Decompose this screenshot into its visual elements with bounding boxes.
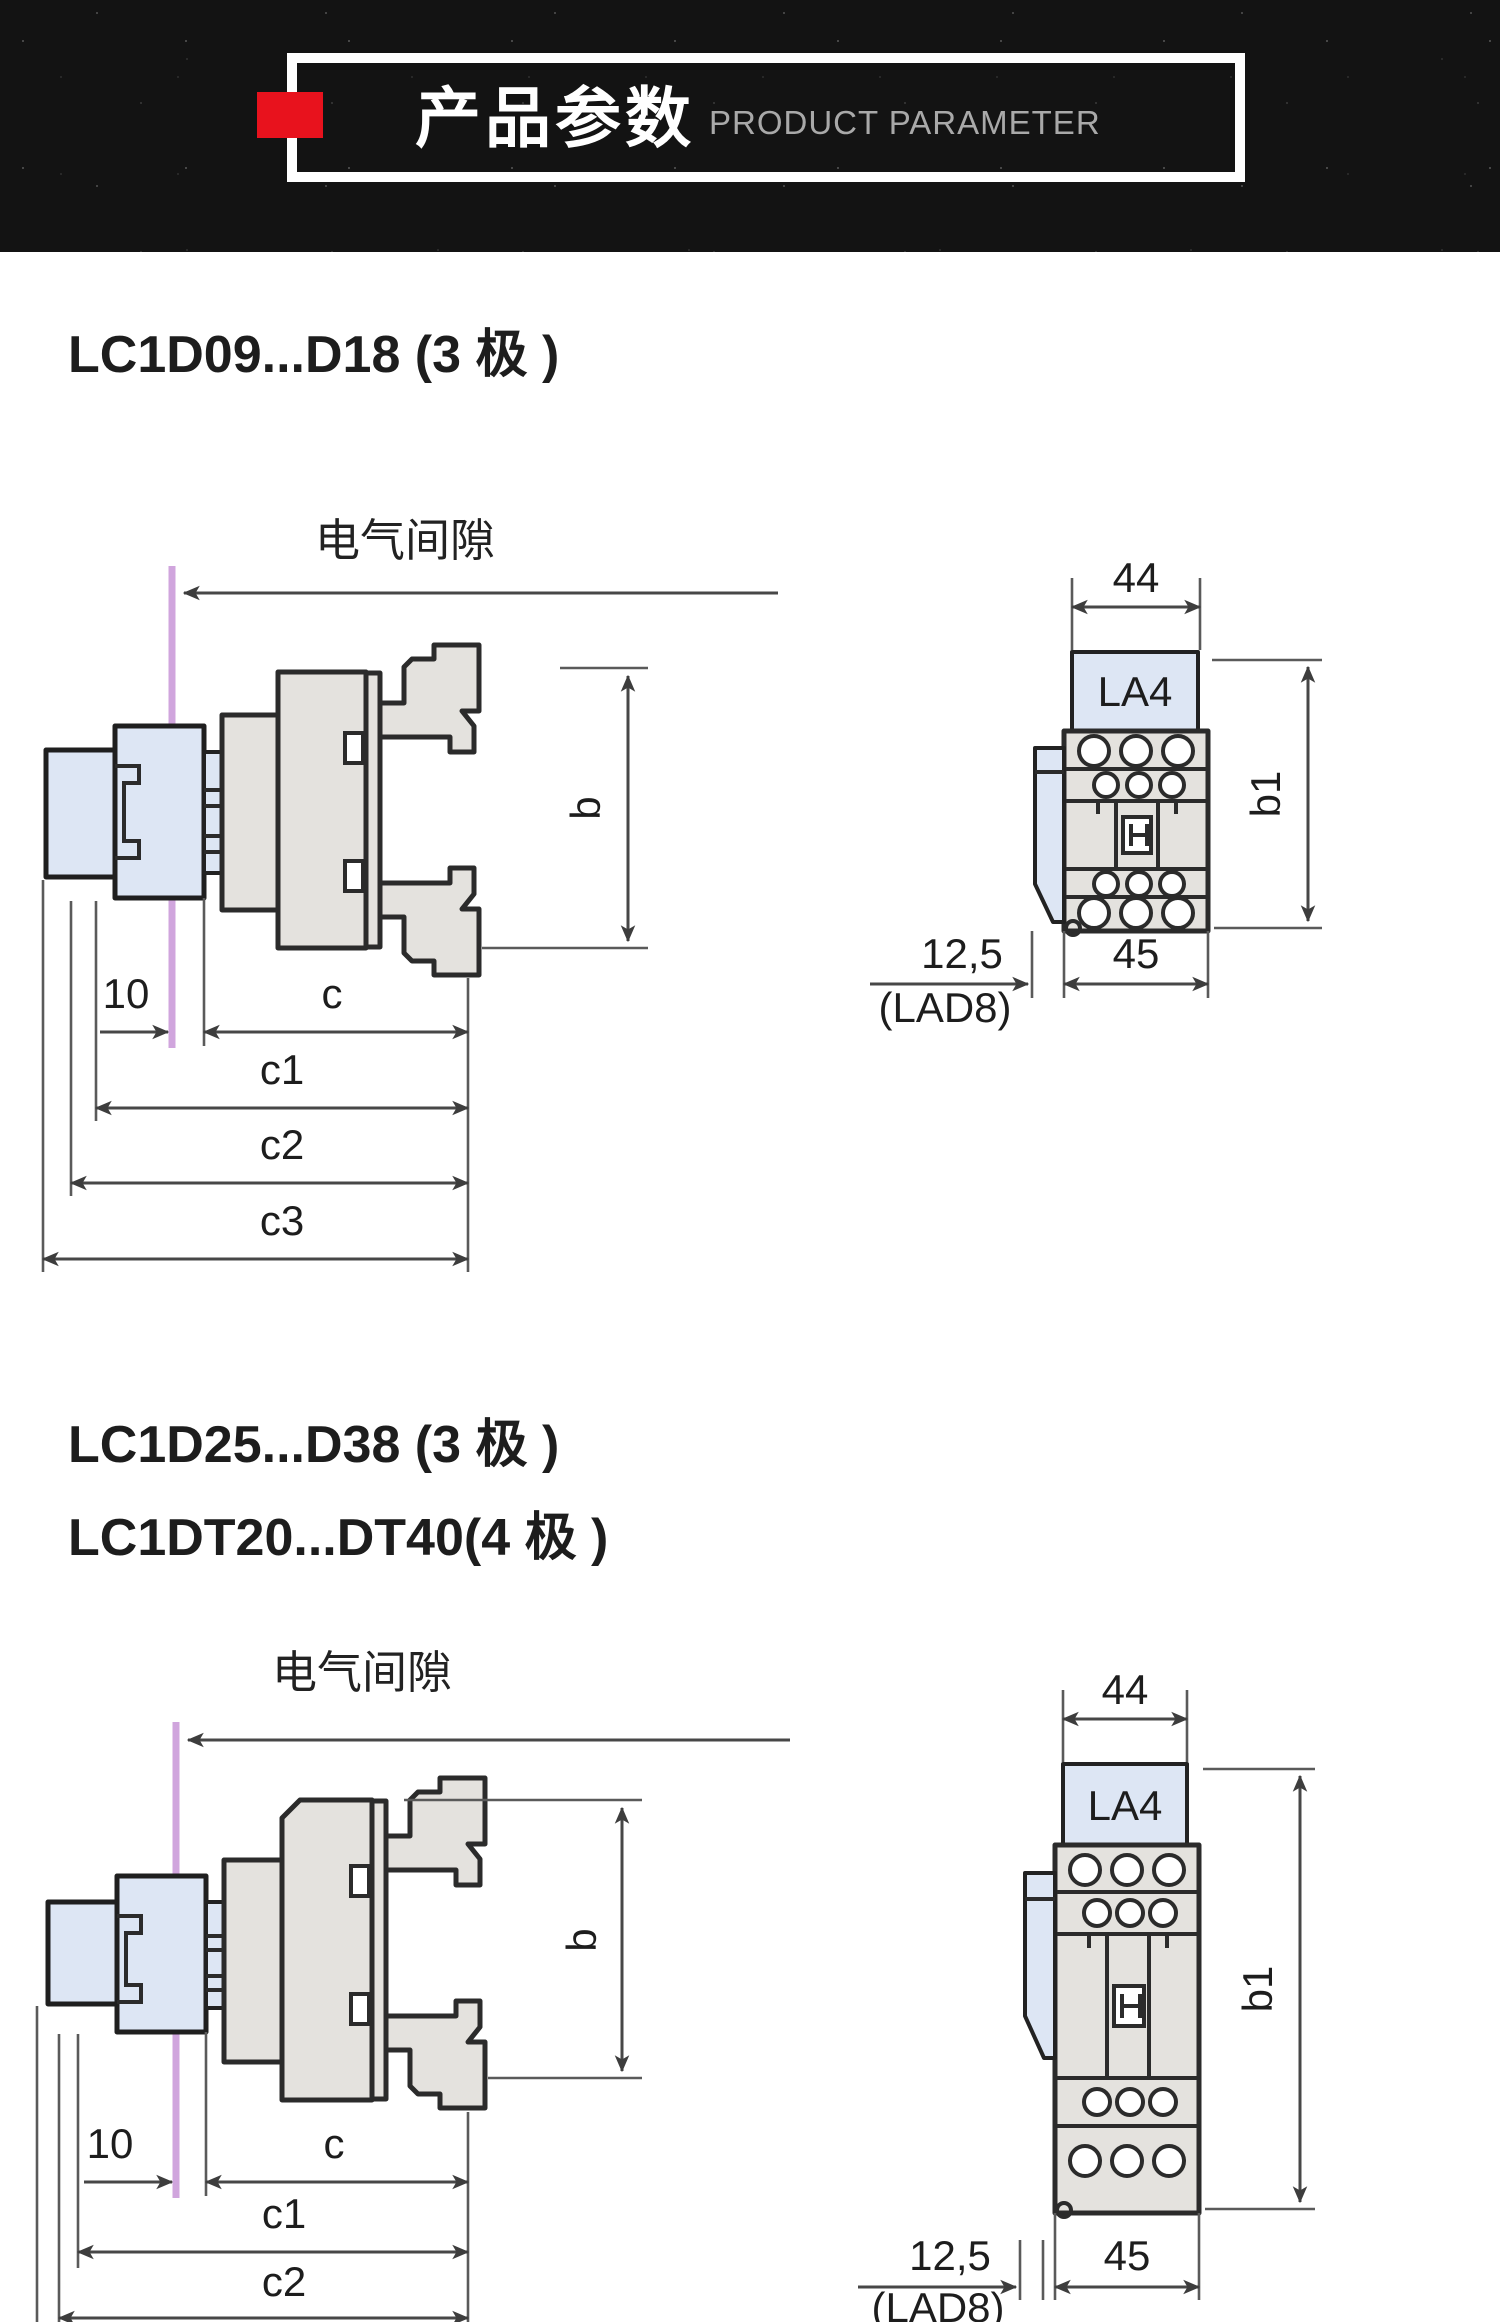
section2-title-line2: LC1DT20...DT40(4 极 ) bbox=[68, 1509, 608, 1567]
mount-slot-top bbox=[345, 733, 363, 763]
dim-c-label: c bbox=[322, 970, 343, 1017]
section1-side-view: 电气间隙 bbox=[43, 515, 778, 1272]
terminal bbox=[1117, 1900, 1143, 1926]
terminal bbox=[1117, 2089, 1143, 2115]
terminal bbox=[1150, 1900, 1176, 1926]
dim-b-label: b bbox=[562, 796, 609, 819]
section2-side-view: 电气间隙 b bbox=[37, 1647, 790, 2322]
dim-44-label: 44 bbox=[1102, 1666, 1149, 1713]
dim-45-label: 45 bbox=[1104, 2232, 1151, 2279]
accessory-teeth bbox=[206, 1902, 224, 2008]
dim-45-label: 45 bbox=[1113, 930, 1160, 977]
product-parameter-page: 产品参数 PRODUCT PARAMETER LC1D09...D18 (3 极… bbox=[0, 0, 1500, 2322]
terminal bbox=[1121, 736, 1151, 766]
terminal bbox=[1094, 773, 1118, 797]
dim-c-label: c bbox=[324, 2120, 345, 2167]
section1: LC1D09...D18 (3 极 ) 电气间隙 bbox=[43, 326, 1322, 1272]
dimension-diagrams: LC1D09...D18 (3 极 ) 电气间隙 bbox=[0, 0, 1500, 2322]
dim-b1-label: b1 bbox=[1242, 771, 1289, 818]
terminal bbox=[1094, 872, 1118, 896]
dim-10-label: 10 bbox=[103, 970, 150, 1017]
accessory-end-cap bbox=[48, 1902, 122, 2004]
dim-b-label: b bbox=[558, 1928, 605, 1951]
dim-12-5-label: 12,5 bbox=[909, 2232, 991, 2279]
accessory-end-cap bbox=[46, 750, 120, 877]
side-latch bbox=[1035, 748, 1064, 922]
terminal bbox=[1160, 773, 1184, 797]
section2: LC1D25...D38 (3 极 ) LC1DT20...DT40(4 极 )… bbox=[37, 1416, 1315, 2322]
terminal bbox=[1084, 2089, 1110, 2115]
rail-claw-bottom bbox=[386, 2001, 485, 2108]
clearance-label: 电气间隙 bbox=[272, 1647, 452, 1698]
terminal bbox=[1163, 736, 1193, 766]
accessory-teeth bbox=[204, 752, 222, 873]
lad8-note: (LAD8) bbox=[878, 984, 1011, 1031]
accessory-panel bbox=[115, 726, 204, 898]
terminal bbox=[1112, 1855, 1142, 1885]
accessory-panel bbox=[117, 1876, 206, 2032]
dim-c1-label: c1 bbox=[260, 1046, 304, 1093]
section2-front-view: 44 LA4 bbox=[858, 1666, 1315, 2322]
terminal bbox=[1070, 1855, 1100, 1885]
clearance-label: 电气间隙 bbox=[315, 515, 495, 566]
terminal bbox=[1163, 898, 1193, 928]
lad8-note: (LAD8) bbox=[871, 2284, 1004, 2322]
terminal bbox=[1154, 2146, 1184, 2176]
terminal bbox=[1160, 872, 1184, 896]
terminal bbox=[1150, 2089, 1176, 2115]
terminal bbox=[1112, 2146, 1142, 2176]
dim-c2-label: c2 bbox=[262, 2258, 306, 2305]
contactor-front-block bbox=[222, 715, 278, 910]
dim-44-label: 44 bbox=[1113, 554, 1160, 601]
terminal bbox=[1127, 872, 1151, 896]
section1-title: LC1D09...D18 (3 极 ) bbox=[68, 326, 559, 384]
dim-b1-label: b1 bbox=[1234, 1966, 1281, 2013]
terminal bbox=[1154, 1855, 1184, 1885]
terminal bbox=[1084, 1900, 1110, 1926]
dim-10-label: 10 bbox=[87, 2120, 134, 2167]
dim-c3-label: c3 bbox=[260, 1197, 304, 1244]
contactor-main-block bbox=[282, 1800, 372, 2100]
rail-claw-top bbox=[380, 645, 479, 752]
dim-12-5-label: 12,5 bbox=[921, 930, 1003, 977]
rail-claw-bottom bbox=[380, 868, 479, 975]
la4-label: LA4 bbox=[1088, 1782, 1163, 1829]
mount-slot-bottom bbox=[345, 861, 363, 891]
la4-label: LA4 bbox=[1098, 668, 1173, 715]
terminal bbox=[1070, 2146, 1100, 2176]
dim-c1-label: c1 bbox=[262, 2190, 306, 2237]
section1-front-view: 44 LA4 bbox=[870, 554, 1322, 1031]
terminal bbox=[1121, 898, 1151, 928]
terminal bbox=[1127, 773, 1151, 797]
section2-title-line1: LC1D25...D38 (3 极 ) bbox=[68, 1416, 559, 1474]
terminal bbox=[1079, 736, 1109, 766]
terminal bbox=[1079, 898, 1109, 928]
contactor-front-block bbox=[224, 1860, 282, 2062]
mount-slot-bottom bbox=[351, 1994, 369, 2024]
dim-c2-label: c2 bbox=[260, 1121, 304, 1168]
contactor-main-block bbox=[278, 672, 366, 948]
rail-claw-top bbox=[386, 1778, 485, 1885]
mount-slot-top bbox=[351, 1866, 369, 1896]
